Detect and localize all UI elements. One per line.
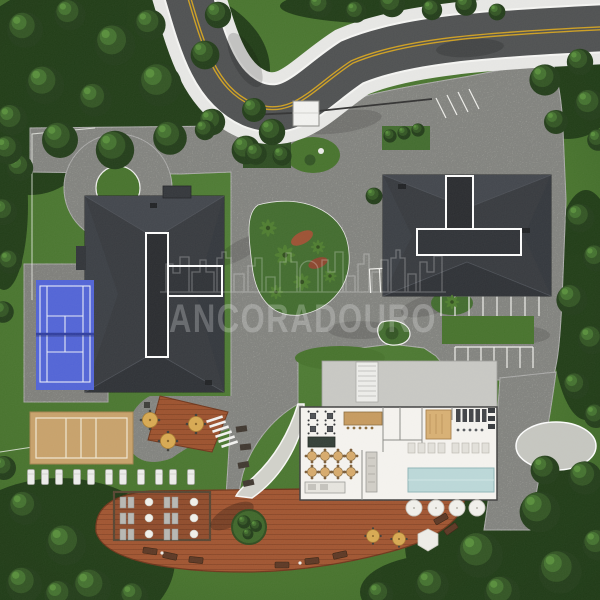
aerial-render-canvas: ANCORADOURO xyxy=(0,0,600,600)
site-plan-render: ANCORADOURO xyxy=(0,0,600,600)
render-grain-overlay xyxy=(0,0,600,600)
